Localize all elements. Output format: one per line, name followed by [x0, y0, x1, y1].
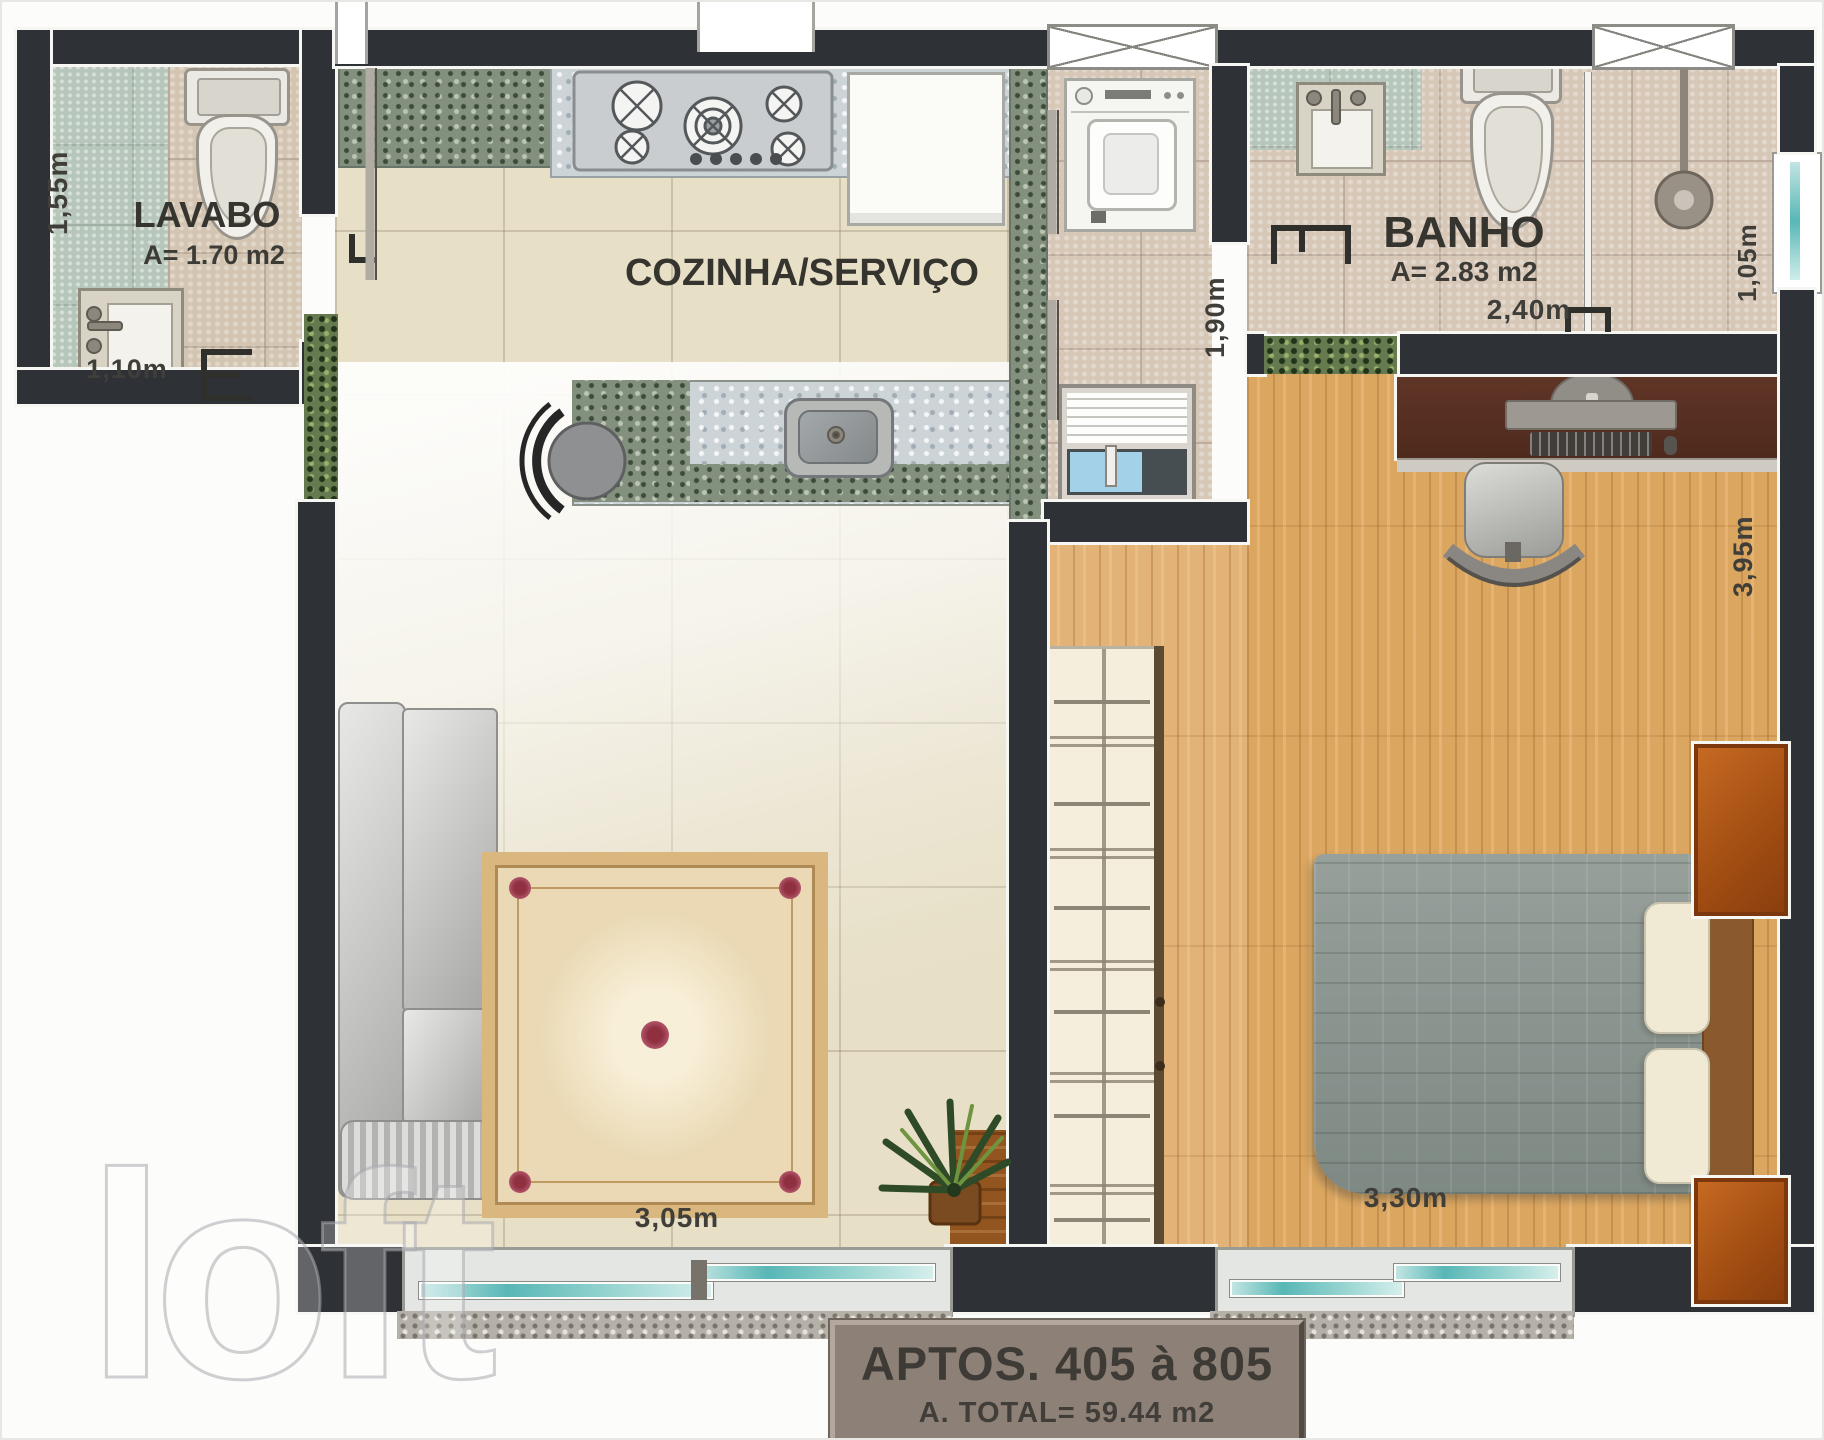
- lavabo-label: LAVABO: [107, 194, 307, 236]
- office-chair-symbol: [1464, 462, 1564, 558]
- wall-segment: [302, 30, 335, 214]
- wall-segment: [1212, 66, 1247, 242]
- banho-label: BANHO: [1344, 208, 1584, 258]
- dim-lavabo-depth: 1,55m: [42, 120, 74, 265]
- nightstand-symbol: [1694, 744, 1788, 916]
- lavabo-area-label: A= 1.70 m2: [114, 240, 314, 271]
- mouse-symbol: [1664, 436, 1677, 455]
- closet-door-track: [1154, 646, 1164, 1288]
- dim-banho-width: 2,40m: [1469, 294, 1589, 326]
- wall-segment: [1247, 334, 1264, 374]
- window-symbol: [1592, 24, 1735, 70]
- wall-segment: [1400, 334, 1814, 374]
- wall-segment: [947, 1247, 1215, 1312]
- banner-title: APTOS. 405 à 805: [861, 1336, 1273, 1391]
- wall-segment: [1780, 66, 1814, 152]
- dim-dormitorio-depth: 3,95m: [1728, 494, 1759, 619]
- closet-symbol: [1047, 646, 1161, 1294]
- cozinha-servico-label: COZINHA/SERVIÇO: [557, 252, 1047, 295]
- washing-machine-symbol: [1064, 78, 1196, 232]
- planter-strip: [1264, 336, 1400, 374]
- right-wall-window: [1772, 152, 1822, 294]
- wall-channel: [335, 2, 368, 64]
- banner-subtitle: A. TOTAL= 59.44 m2: [919, 1397, 1216, 1430]
- dim-sala-width: 3,05m: [617, 1202, 737, 1234]
- fridge-symbol: [847, 72, 1005, 226]
- wall-notch: [697, 2, 815, 52]
- banho-sink-symbol: [1296, 82, 1386, 176]
- loft-watermark: loft: [86, 1130, 484, 1422]
- window-symbol: [1215, 1247, 1575, 1317]
- island-sink-symbol: [784, 398, 894, 478]
- dim-servico-depth: 1,90m: [1200, 250, 1231, 385]
- dim-lavabo-width: 1,10m: [72, 354, 182, 385]
- desk-front-edge: [1397, 458, 1778, 472]
- banho-area-label: A= 2.83 m2: [1344, 256, 1584, 288]
- floor-plan: 1,55m LAVABO A= 1.70 m2 1,10m COZINHA/SE…: [0, 0, 1824, 1440]
- island-counter-green-left: [572, 380, 690, 502]
- pillow: [1644, 1048, 1710, 1184]
- laundry-tank-symbol: [1058, 384, 1196, 504]
- title-banner: APTOS. 405 à 805 A. TOTAL= 59.44 m2: [830, 1320, 1304, 1440]
- kitchen-counter-dark: [338, 66, 554, 168]
- dim-shower-width: 1,05m: [1732, 204, 1763, 322]
- wall-segment: [17, 30, 335, 64]
- balcony-wood-strip: [950, 1130, 1009, 1247]
- nightstand-symbol: [1694, 1178, 1788, 1304]
- kitchen-divider-counter: [1009, 66, 1048, 526]
- planter-strip: [304, 314, 338, 504]
- wall-segment: [1009, 522, 1047, 1247]
- window-symbol: [402, 1247, 953, 1317]
- window-symbol: [1047, 24, 1218, 70]
- rug-symbol: [482, 852, 828, 1218]
- keyboard-symbol: [1530, 432, 1652, 456]
- dim-dormitorio-width: 3,30m: [1346, 1182, 1466, 1214]
- desk-shelf: [1505, 400, 1677, 430]
- pillow: [1644, 902, 1710, 1034]
- wall-segment: [1044, 502, 1247, 542]
